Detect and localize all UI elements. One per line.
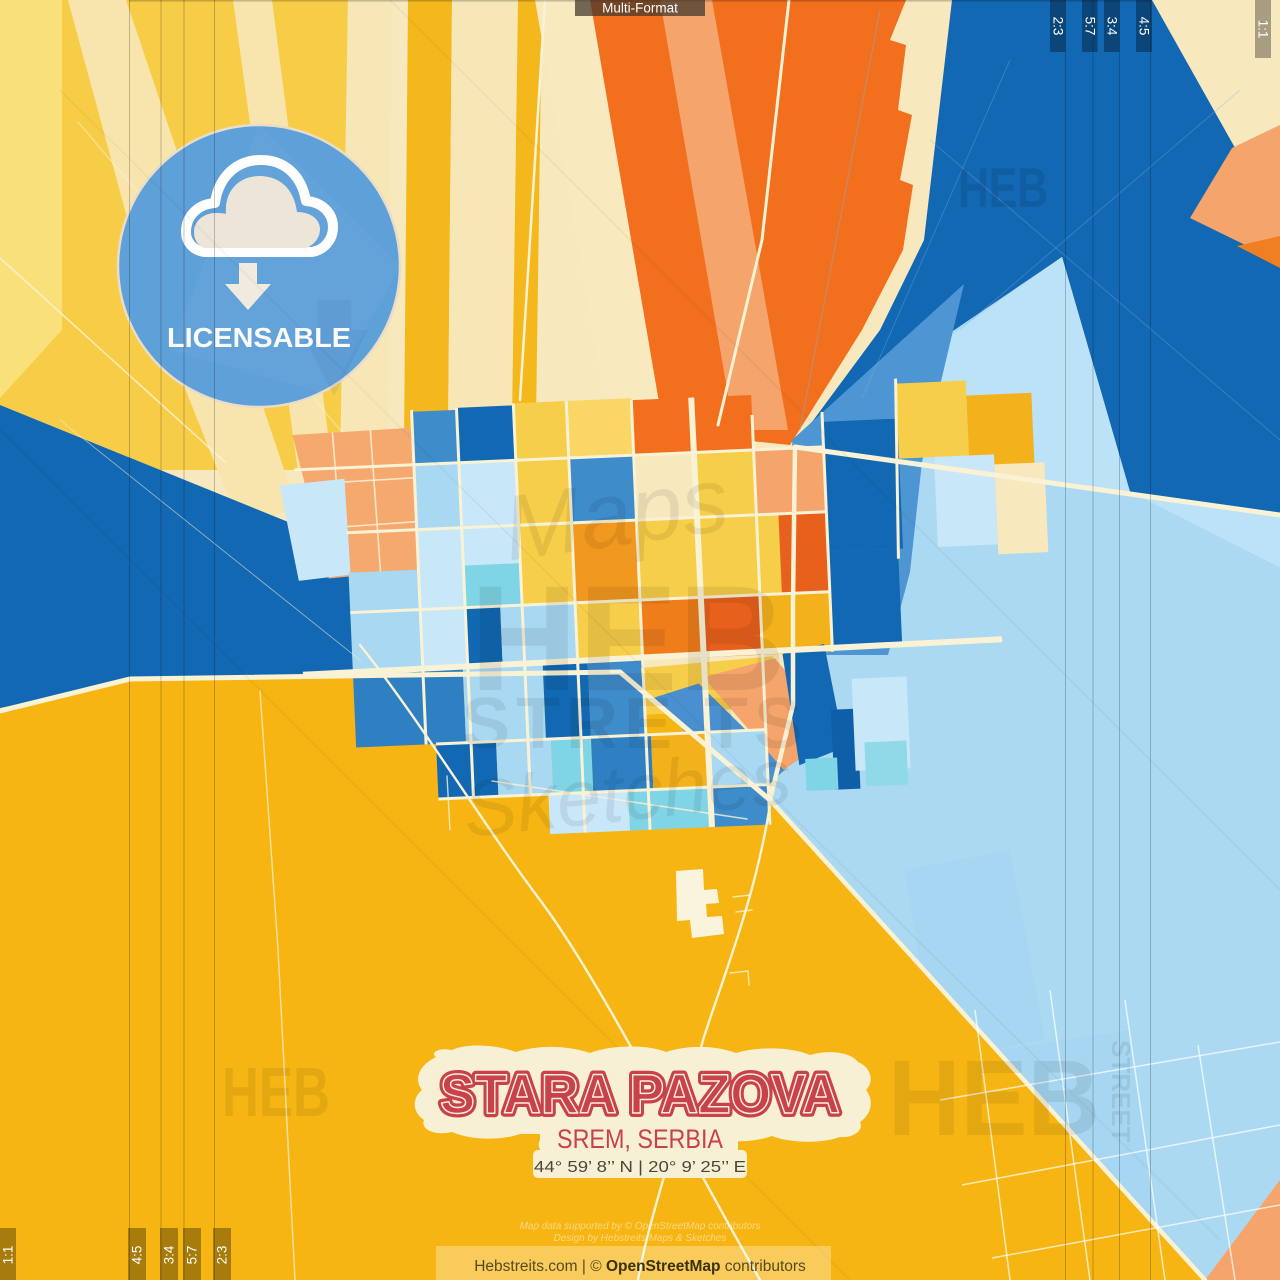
svg-text:3:4: 3:4 [162,1245,177,1264]
svg-text:1:1: 1:1 [1256,20,1271,39]
svg-text:STARA PAZOVA: STARA PAZOVA [440,1062,840,1125]
svg-text:HEB: HEB [222,1053,330,1131]
svg-text:5:7: 5:7 [185,1246,200,1265]
svg-text:HEB: HEB [958,156,1048,219]
svg-text:HEB: HEB [888,1037,1100,1158]
svg-text:Multi-Format: Multi-Format [602,1,678,16]
svg-text:3:4: 3:4 [1105,17,1120,36]
svg-text:STREET: STREET [1106,1040,1136,1143]
svg-text:Map data supported by © OpenSt: Map data supported by © OpenStreetMap co… [520,1221,761,1232]
svg-text:SREM, SERBIA: SREM, SERBIA [557,1124,723,1154]
svg-text:2:3: 2:3 [215,1246,230,1265]
svg-text:4:5: 4:5 [130,1246,145,1265]
svg-text:LICENSABLE: LICENSABLE [167,322,351,353]
svg-text:5:7: 5:7 [1083,17,1098,36]
svg-text:2:3: 2:3 [1051,17,1066,36]
svg-text:44° 59’ 8’’ N | 20° 9’ 2: 44° 59’ 8’’ N | 20° 9’ 25’’ E [534,1159,746,1176]
svg-text:4:5: 4:5 [1137,17,1152,36]
svg-text:1:1: 1:1 [1,1246,16,1265]
svg-text:Hebstreits.com | © OpenStreetM: Hebstreits.com | © OpenStreetMap contrib… [474,1258,806,1275]
svg-text:Design by Hebstreits Maps & Sk: Design by Hebstreits Maps & Sketches [554,1233,727,1244]
